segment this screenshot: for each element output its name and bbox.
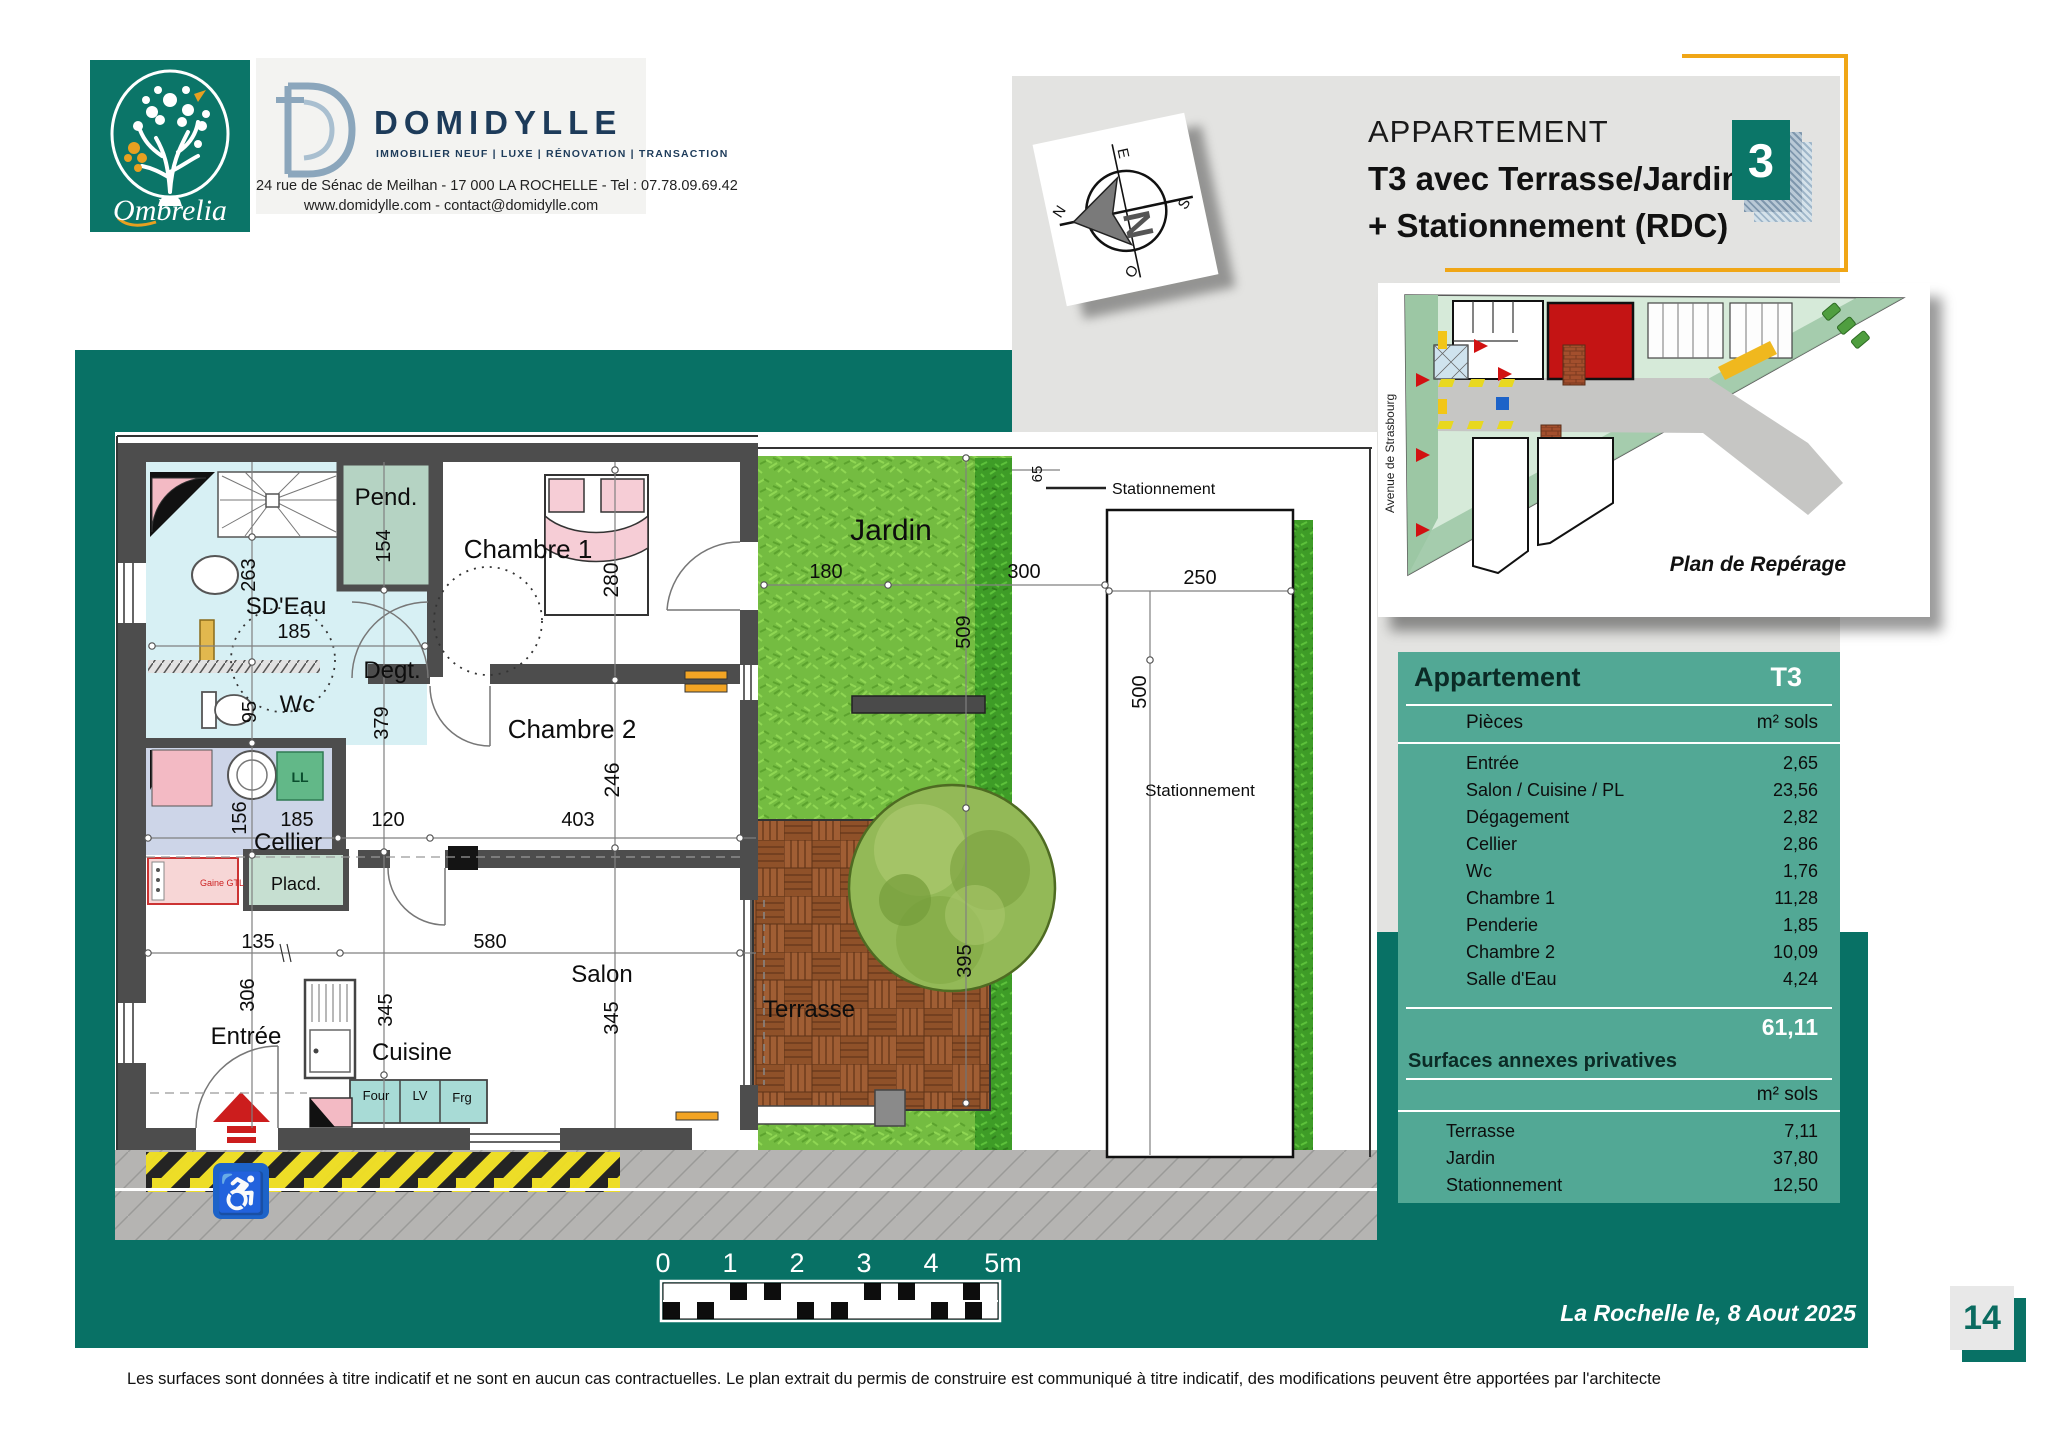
title-line3: + Stationnement (RDC): [1368, 207, 1728, 245]
radiator: [200, 620, 214, 664]
room-degt: Degt.: [363, 657, 420, 684]
insulated-partition: [148, 660, 320, 673]
table-col-unit: m² sols: [1757, 712, 1818, 734]
domidylle-tagline: IMMOBILIER NEUF | LUXE | RÉNOVATION | TR…: [376, 148, 728, 160]
surface-table: Appartement T3 Pièces m² sols Entrée2,65…: [1398, 652, 1840, 1203]
road-marking: [115, 1188, 1377, 1191]
row-label: Entrée: [1466, 753, 1519, 774]
row-label: Penderie: [1466, 915, 1538, 936]
room-sdeau: SD'Eau: [246, 593, 327, 620]
table-title: Appartement: [1414, 662, 1581, 693]
row-label: Stationnement: [1446, 1175, 1562, 1196]
compass-west: O: [1122, 262, 1143, 281]
table-row: Chambre 111,28: [1398, 885, 1840, 912]
parking-space: [1107, 510, 1293, 1157]
table-row: Salon / Cuisine / PL23,56: [1398, 777, 1840, 804]
appl-lv: LV: [413, 1088, 428, 1103]
row-label: Cellier: [1466, 834, 1517, 855]
site-plan-caption: Plan de Repérage: [1670, 553, 1847, 576]
table-row: Entrée2,65: [1398, 750, 1840, 777]
row-label: Terrasse: [1446, 1121, 1515, 1142]
stationnement-callout: Stationnement: [1112, 481, 1216, 498]
room-gaine: Gaine GTL: [200, 878, 244, 888]
row-label: Chambre 2: [1466, 942, 1555, 963]
scale-1: 1: [722, 1248, 737, 1278]
dim-jardin-w2: 300: [1007, 561, 1040, 583]
dim-degt-h: 379: [371, 706, 393, 739]
table-line: [1406, 1078, 1832, 1080]
domidylle-web: www.domidylle.com - contact@domidylle.co…: [256, 198, 646, 214]
room-pend: Pend.: [355, 484, 418, 511]
dim-sdeau-w: 185: [277, 621, 310, 643]
area-stationnement: Stationnement: [1145, 781, 1255, 800]
penderie-closet: [340, 462, 432, 588]
terrasse-curb: [750, 1106, 875, 1124]
table-row: Penderie1,85: [1398, 912, 1840, 939]
row-value: 10,09: [1773, 942, 1818, 963]
row-value: 2,82: [1783, 807, 1818, 828]
date-text: La Rochelle le, 8 Aout 2025: [1560, 1300, 1856, 1326]
room-cellier: Cellier: [254, 829, 322, 856]
site-plan-drawing: Avenue de Strasbourg Plan de Repérage: [1378, 283, 1930, 617]
row-value: 1,76: [1783, 861, 1818, 882]
table-row: Terrasse7,11: [1398, 1118, 1840, 1145]
row-value: 11,28: [1774, 888, 1818, 909]
accessible-icon: ♿: [213, 1163, 269, 1219]
appl-four: Four: [363, 1088, 390, 1103]
area-jardin: Jardin: [850, 514, 932, 547]
dim-cellier-h: 156: [229, 801, 251, 834]
row-label: Chambre 1: [1466, 888, 1555, 909]
pillar: [448, 846, 478, 870]
scale-4: 4: [923, 1248, 938, 1278]
room-cuisine: Cuisine: [372, 1039, 452, 1066]
compass-east: E: [1113, 147, 1132, 160]
row-label: Salon / Cuisine / PL: [1466, 780, 1624, 801]
terrasse-step: [875, 1090, 905, 1126]
room-chambre1: Chambre 1: [464, 534, 593, 564]
disclaimer: Les surfaces sont données à titre indica…: [127, 1370, 2027, 1389]
date-line: La Rochelle le, 8 Aout 2025: [1398, 1300, 1856, 1327]
table-line: [1406, 704, 1832, 706]
washbasin: [192, 556, 238, 594]
domidylle-address: 24 rue de Sénac de Meilhan - 17 000 LA R…: [256, 178, 646, 194]
table-col-label: Pièces: [1466, 712, 1523, 734]
row-value: 12,50: [1773, 1175, 1818, 1196]
table-row: Stationnement12,50: [1398, 1172, 1840, 1199]
table-line: [1398, 1110, 1840, 1112]
dim-pend-w: 154: [373, 529, 395, 562]
annex-unit: m² sols: [1757, 1084, 1818, 1106]
table-type: T3: [1770, 662, 1802, 693]
table-row: Cellier2,86: [1398, 831, 1840, 858]
row-label: Salle d'Eau: [1466, 969, 1557, 990]
dim-salon-w: 580: [473, 931, 506, 953]
ombrelia-logo: Ombrelia: [90, 60, 250, 232]
dim-ch2-h: 246: [601, 762, 624, 797]
room-placard: Placd.: [271, 874, 321, 894]
row-value: 2,86: [1783, 834, 1818, 855]
page-number: 14: [1963, 1299, 2001, 1338]
row-value: 2,65: [1783, 753, 1818, 774]
compass-north: N: [1050, 203, 1070, 221]
row-value: 1,85: [1783, 915, 1818, 936]
row-value: 23,56: [1773, 780, 1818, 801]
floor-plan: LL: [115, 430, 1377, 1240]
domidylle-logo-block: DOMIDYLLE IMMOBILIER NEUF | LUXE | RÉNOV…: [256, 58, 646, 214]
tree-icon: [849, 785, 1055, 991]
dim-sdeau-h: 263: [238, 558, 260, 591]
dim-entree-w: 135: [241, 931, 274, 953]
lot-badge-number: 3: [1748, 133, 1774, 188]
ll-label: LL: [291, 769, 309, 785]
garden-planter: [852, 696, 985, 713]
scale-bar: 0 1 2 3 4 5m: [600, 1238, 1060, 1338]
annex-title: Surfaces annexes privatives: [1408, 1050, 1677, 1073]
dim-parking-h: 500: [1129, 675, 1151, 708]
dim-salon-h: 345: [601, 1001, 623, 1034]
room-entree: Entrée: [211, 1023, 282, 1050]
row-label: Dégagement: [1466, 807, 1569, 828]
page-number-box: 14: [1950, 1286, 2014, 1350]
orange-bracket-top: [1682, 54, 1848, 58]
table-total: 61,11: [1762, 1014, 1818, 1041]
area-terrasse: Terrasse: [763, 996, 855, 1023]
scale-5m: 5m: [984, 1248, 1022, 1278]
dim-degt-w: 120: [371, 809, 404, 831]
orange-bracket-bottom: [1445, 268, 1848, 272]
row-value: 7,11: [1784, 1121, 1818, 1142]
scale-2: 2: [789, 1248, 804, 1278]
table-row: Dégagement2,82: [1398, 804, 1840, 831]
appl-frg: Frg: [452, 1090, 472, 1105]
dim-entree-h: 306: [237, 978, 259, 1011]
row-value: 37,80: [1773, 1148, 1818, 1169]
domidylle-wordmark: DOMIDYLLE: [374, 104, 622, 142]
table-row: Salle d'Eau4,24: [1398, 966, 1840, 993]
lot-badge: 3: [1732, 120, 1790, 200]
dim-ch2-w: 403: [561, 809, 594, 831]
table-line: [1406, 1007, 1832, 1009]
room-wc: Wc: [280, 691, 315, 718]
table-line: [1398, 742, 1840, 744]
dim-wc-h: 95: [239, 701, 261, 723]
hedge-strip-far-right: [1293, 520, 1313, 1157]
row-label: Wc: [1466, 861, 1492, 882]
domidylle-d-monogram-icon: [274, 80, 362, 180]
table-row: Wc1,76: [1398, 858, 1840, 885]
dim-parking-w: 250: [1183, 567, 1216, 589]
cellier-pink-unit: [152, 750, 212, 806]
dim-cuisine-h: 345: [375, 993, 397, 1026]
page: Ombrelia DOMIDYLLE IMMOBILIER NEUF | LUX…: [0, 0, 2048, 1448]
table-row: Chambre 210,09: [1398, 939, 1840, 966]
dim-jardin-w1: 180: [809, 561, 842, 583]
title-line2: T3 avec Terrasse/Jardin: [1368, 160, 1742, 198]
scale-3: 3: [856, 1248, 871, 1278]
orange-bracket-right: [1844, 54, 1848, 272]
scale-0: 0: [655, 1248, 670, 1278]
site-plan-card: Avenue de Strasbourg Plan de Repérage: [1378, 283, 1930, 617]
room-chambre2: Chambre 2: [508, 714, 637, 744]
row-value: 4,24: [1783, 969, 1818, 990]
site-plan-street: Avenue de Strasbourg: [1383, 394, 1397, 513]
dim-jardin-h: 509: [953, 615, 975, 648]
dim-cellier-w: 185: [280, 809, 313, 831]
table-row: Jardin37,80: [1398, 1145, 1840, 1172]
room-salon: Salon: [571, 961, 632, 988]
title-line1: APPARTEMENT: [1368, 114, 1609, 150]
ombrelia-wordmark: Ombrelia: [90, 194, 250, 228]
dim-ch1-h: 280: [600, 562, 623, 597]
shower: [218, 472, 340, 537]
row-label: Jardin: [1446, 1148, 1495, 1169]
svg-text:♿: ♿: [216, 1170, 266, 1216]
kitchen-tall-unit: [305, 980, 355, 1078]
dim-strip-w: 65: [1029, 466, 1046, 483]
dim-terrasse-h: 395: [954, 944, 976, 977]
